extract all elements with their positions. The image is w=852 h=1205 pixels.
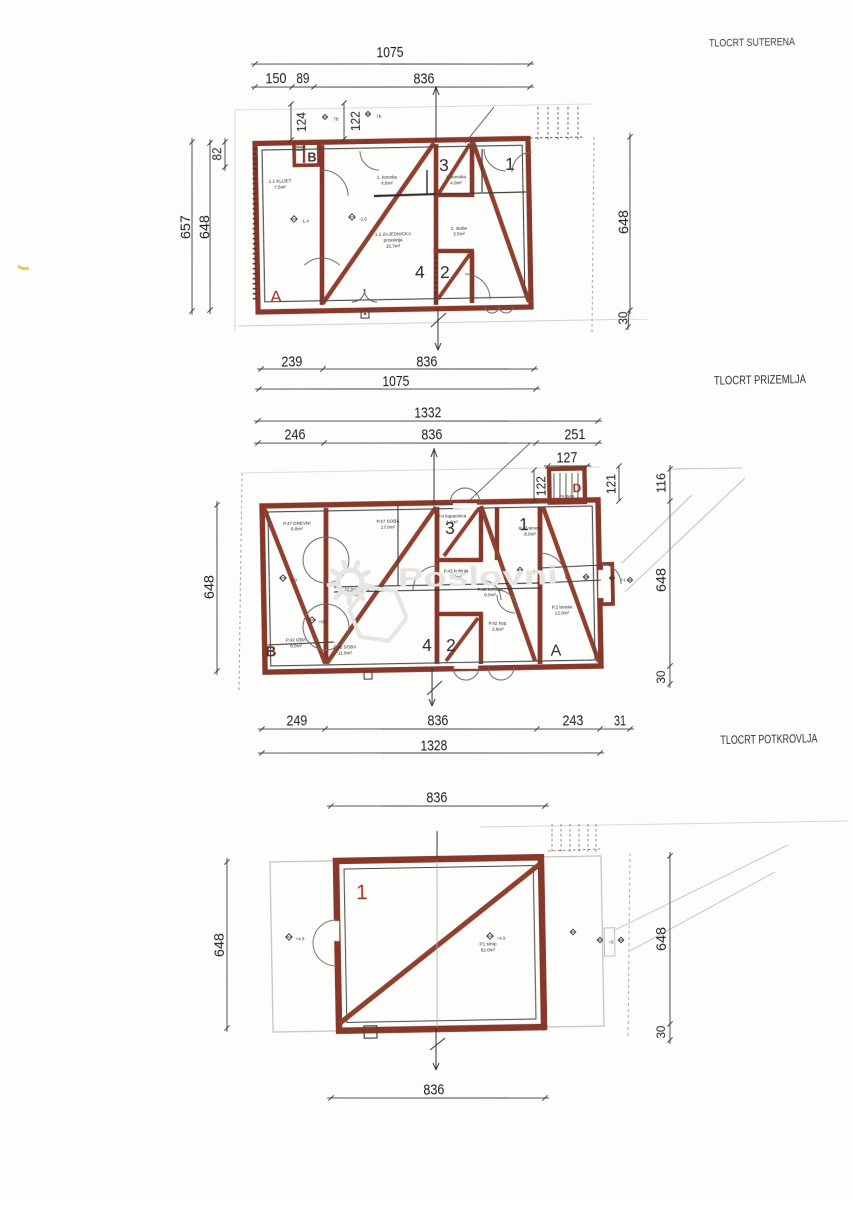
svg-text:15.7m²: 15.7m²	[386, 243, 401, 248]
svg-text:1.2 ZAJEDNICKA: 1.2 ZAJEDNICKA	[375, 231, 412, 237]
svg-text:TLOCRT SUTERENA: TLOCRT SUTERENA	[709, 36, 796, 50]
svg-text:+5: +5	[608, 940, 614, 945]
svg-text:4: 4	[415, 262, 425, 282]
svg-text:17.0m²: 17.0m²	[381, 524, 396, 529]
svg-text:648: 648	[653, 927, 669, 952]
svg-text:648: 648	[211, 933, 227, 958]
svg-text:4: 4	[422, 635, 432, 655]
svg-text:122: 122	[347, 111, 362, 131]
svg-text:150: 150	[265, 70, 286, 87]
svg-text:+1: +1	[620, 578, 626, 583]
svg-text:30: 30	[616, 311, 630, 324]
svg-text:prostorija: prostorija	[384, 237, 403, 242]
svg-text:+4.9: +4.9	[296, 936, 305, 941]
svg-text:0.0: 0.0	[291, 578, 298, 583]
svg-text:239: 239	[281, 353, 302, 370]
svg-text:30: 30	[654, 670, 668, 684]
svg-text:1. stube: 1. stube	[451, 225, 468, 230]
svg-text:TLOCRT PRIZEMLJA: TLOCRT PRIZEMLJA	[714, 374, 806, 388]
svg-text:2: 2	[440, 262, 450, 282]
svg-text:1. konoba: 1. konoba	[377, 174, 398, 179]
svg-text:1: 1	[505, 154, 515, 174]
svg-text:124: 124	[293, 112, 308, 132]
svg-text:-2.6: -2.6	[359, 217, 367, 222]
svg-text:-1.4: -1.4	[301, 218, 309, 223]
svg-text:A: A	[270, 287, 282, 306]
svg-text:836: 836	[427, 712, 448, 729]
svg-text:TLOCRT POTKROVLJA: TLOCRT POTKROVLJA	[720, 733, 817, 747]
svg-text:+4.9: +4.9	[497, 935, 506, 940]
svg-text:648: 648	[615, 210, 631, 235]
svg-text:11.8m²: 11.8m²	[338, 650, 353, 655]
svg-text:4.0m²: 4.0m²	[446, 519, 458, 524]
svg-text:836: 836	[416, 353, 437, 370]
svg-text:P.4 kupaonica: P.4 kupaonica	[438, 513, 467, 519]
svg-text:836: 836	[423, 1081, 444, 1098]
svg-text:122: 122	[533, 476, 548, 496]
svg-text:31: 31	[614, 712, 626, 729]
svg-text:P1 strop: P1 strop	[479, 941, 497, 946]
svg-text:648: 648	[201, 575, 217, 600]
svg-text:P.47 SOBA: P.47 SOBA	[376, 518, 400, 523]
svg-text:7b: 7b	[376, 114, 382, 119]
svg-text:116: 116	[653, 473, 668, 493]
svg-text:82: 82	[210, 147, 224, 160]
svg-text:836: 836	[421, 426, 442, 443]
svg-text:836: 836	[413, 70, 434, 87]
svg-text:D: D	[573, 481, 582, 495]
svg-text:A: A	[550, 643, 561, 660]
svg-text:249: 249	[286, 712, 307, 729]
svg-text:4.0m²: 4.0m²	[450, 180, 462, 185]
svg-text:2: 2	[446, 635, 456, 655]
svg-text:P.42 SOBA: P.42 SOBA	[333, 644, 357, 649]
svg-text:1075: 1075	[376, 44, 403, 61]
svg-text:P.42 kup.: P.42 kup.	[488, 620, 507, 625]
svg-text:B: B	[307, 150, 316, 164]
svg-text:3: 3	[439, 155, 449, 175]
svg-text:30: 30	[654, 1025, 668, 1039]
svg-text:3.6m²: 3.6m²	[492, 626, 504, 631]
svg-text:B: B	[265, 643, 276, 660]
svg-text:6.0m²: 6.0m²	[290, 643, 302, 648]
svg-text:4.8m²: 4.8m²	[381, 180, 393, 185]
svg-text:8.0m²: 8.0m²	[524, 531, 536, 536]
svg-text:6.8m²: 6.8m²	[291, 526, 303, 531]
svg-text:62.0m²: 62.0m²	[481, 947, 496, 952]
svg-text:1: 1	[356, 881, 368, 904]
svg-text:9.0m²: 9.0m²	[484, 592, 496, 597]
svg-text:P.42 IZBA: P.42 IZBA	[286, 637, 307, 642]
svg-text:3.5m²: 3.5m²	[453, 231, 465, 236]
svg-text:P.47 terasa: P.47 terasa	[519, 525, 542, 530]
svg-text:Poslovni: Poslovni	[398, 560, 559, 593]
svg-text:P.2 terasa: P.2 terasa	[552, 604, 573, 609]
svg-text:121: 121	[603, 474, 618, 494]
svg-text:648: 648	[196, 215, 212, 240]
svg-text:251: 251	[564, 426, 585, 443]
svg-text:1. konoba: 1. konoba	[446, 174, 467, 179]
svg-text:P.47 DNEVNI: P.47 DNEVNI	[283, 520, 311, 526]
svg-text:7.5m²: 7.5m²	[274, 184, 286, 189]
svg-text:+0.2: +0.2	[318, 620, 327, 625]
svg-text:836: 836	[426, 789, 447, 806]
svg-text:246: 246	[284, 426, 305, 443]
svg-text:1.1 KLIJET: 1.1 KLIJET	[269, 178, 292, 183]
svg-text:89: 89	[296, 70, 309, 87]
svg-text:7b: 7b	[333, 117, 339, 122]
svg-text:243: 243	[562, 712, 583, 729]
svg-text:657: 657	[177, 215, 193, 240]
svg-text:1332: 1332	[414, 404, 441, 421]
svg-text:127: 127	[556, 449, 577, 466]
svg-text:12.0m²: 12.0m²	[555, 610, 570, 615]
svg-text:1075: 1075	[382, 373, 409, 390]
svg-text:1328: 1328	[420, 737, 447, 754]
svg-text:648: 648	[653, 568, 669, 593]
